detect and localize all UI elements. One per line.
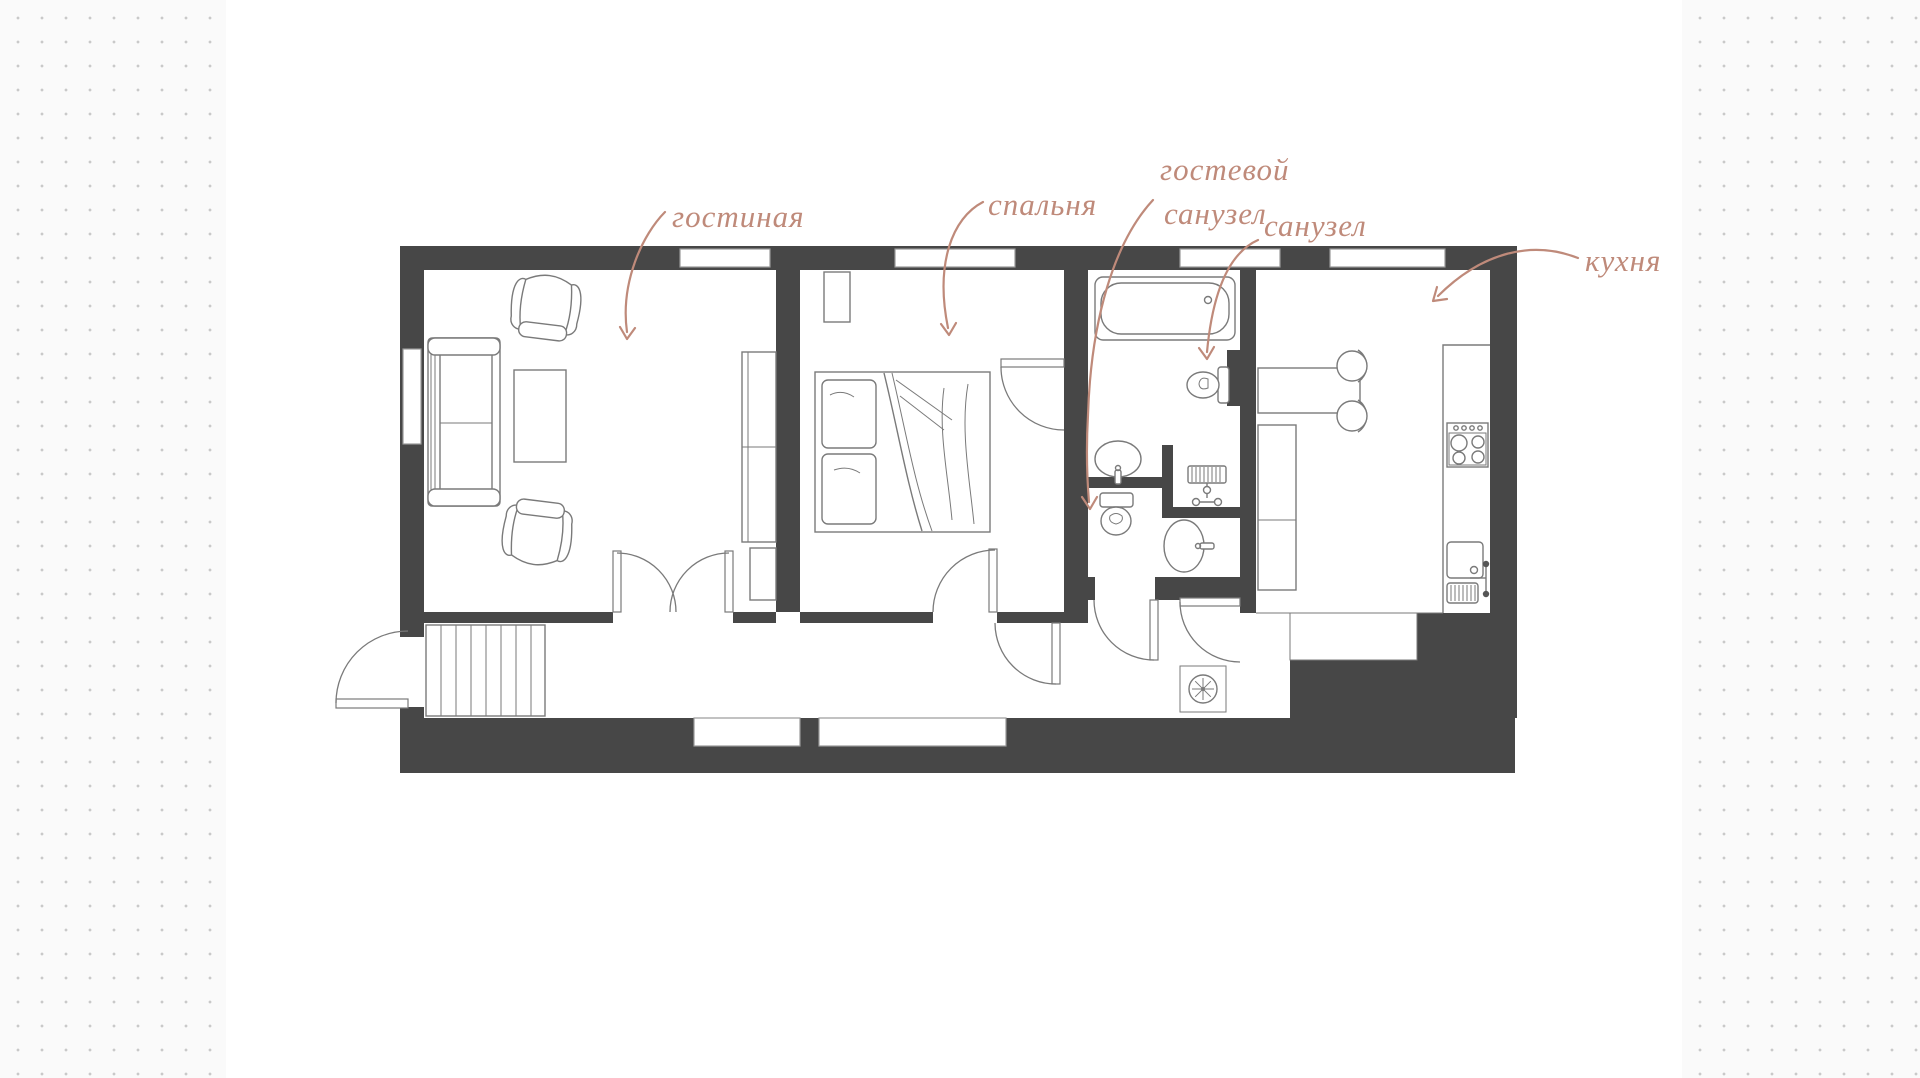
room-label: гостиная xyxy=(672,199,805,234)
bedroom xyxy=(815,272,1064,612)
room-label: санузел xyxy=(1164,196,1267,231)
double-door xyxy=(613,551,733,612)
living-room xyxy=(428,271,776,612)
page: гостиная спальня гостевой санузел санузе… xyxy=(0,0,1920,1078)
wardrobe xyxy=(742,352,776,600)
armchair xyxy=(508,271,584,343)
toilet xyxy=(1187,367,1229,403)
armchair xyxy=(499,497,575,569)
room-label: гостевой xyxy=(1160,152,1290,187)
sink xyxy=(1164,520,1214,572)
room-label: санузел xyxy=(1264,208,1367,243)
chair xyxy=(1337,400,1367,432)
door xyxy=(1180,598,1240,662)
window-icon xyxy=(680,249,770,267)
pantry xyxy=(1290,613,1417,660)
window-icon xyxy=(403,349,421,444)
sofa xyxy=(428,338,500,506)
room-label: кухня xyxy=(1585,243,1661,278)
door xyxy=(933,549,997,612)
door xyxy=(995,623,1060,684)
stove xyxy=(1447,423,1488,467)
kitchen xyxy=(1256,345,1490,613)
window-icon xyxy=(1330,249,1445,267)
coffee-table xyxy=(514,370,566,462)
radiator xyxy=(1188,466,1226,506)
stairs xyxy=(426,625,545,716)
fan-icon xyxy=(1180,666,1226,712)
radiator xyxy=(1447,583,1478,603)
door xyxy=(1001,359,1064,430)
window-icon xyxy=(694,718,800,746)
window-icon xyxy=(895,249,1015,267)
floor-plan: гостиная спальня гостевой санузел санузе… xyxy=(0,0,1920,1078)
entrance-door xyxy=(336,631,408,708)
window-icon xyxy=(819,718,1006,746)
entrance-opening xyxy=(400,637,424,707)
chair xyxy=(1337,350,1367,382)
bed xyxy=(815,372,990,532)
room-label: спальня xyxy=(988,187,1097,222)
cabinet xyxy=(1258,425,1296,590)
closet xyxy=(824,272,850,322)
toilet xyxy=(1100,493,1133,535)
door xyxy=(1094,600,1158,660)
